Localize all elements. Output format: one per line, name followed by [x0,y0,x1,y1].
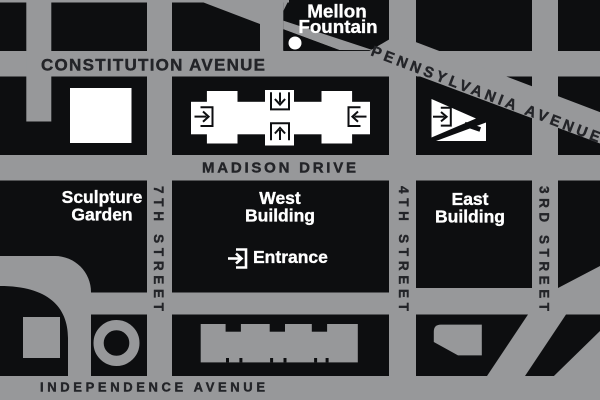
svg-text:4TH STREET: 4TH STREET [396,186,411,312]
svg-text:Building: Building [435,207,505,227]
svg-text:7TH STREET: 7TH STREET [151,186,166,312]
svg-text:3RD STREET: 3RD STREET [537,186,552,312]
svg-text:INDEPENDENCE AVENUE: INDEPENDENCE AVENUE [40,380,265,395]
svg-text:MADISON DRIVE: MADISON DRIVE [202,160,356,177]
svg-text:Garden: Garden [71,205,132,225]
svg-text:Entrance: Entrance [253,247,328,267]
svg-text:Building: Building [245,206,315,226]
svg-text:Fountain: Fountain [298,16,377,37]
svg-text:CONSTITUTION AVENUE: CONSTITUTION AVENUE [41,56,265,75]
